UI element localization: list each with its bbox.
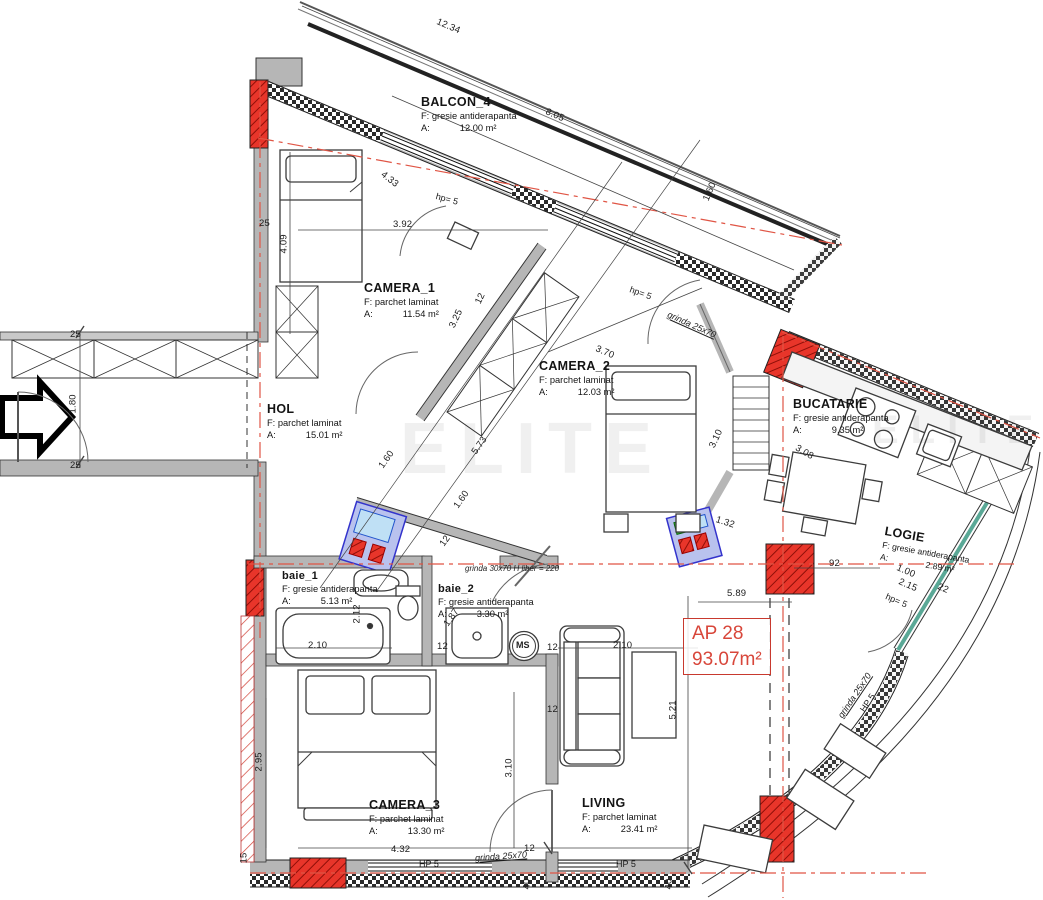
wardrobe <box>276 286 318 378</box>
room-label-living: LIVING F: parchet laminat A:23.41 m² <box>582 796 658 834</box>
room-label-camera-3: CAMERA_3 F: parchet laminat A:13.30 m² <box>369 798 445 836</box>
apartment-label: AP 28 93.07m² <box>683 618 771 675</box>
dimension-label: 12 <box>547 704 558 715</box>
dimension-label: 1.80 <box>68 394 79 413</box>
entry-direction-arrow <box>2 382 72 452</box>
red-column <box>766 544 814 594</box>
annotation-label: HP 5 <box>419 859 439 869</box>
washing-machine-label: MS <box>516 640 530 650</box>
terrace-furniture <box>787 769 854 829</box>
dimension-label: 5.89 <box>727 588 746 599</box>
dimension-label: 25 <box>70 460 81 471</box>
dimension-label: 2.12 <box>352 604 363 623</box>
stairwell <box>733 376 769 470</box>
watermark: ELITE <box>400 408 664 490</box>
bed <box>280 150 362 282</box>
dimension-label: 25 <box>70 329 81 340</box>
dimension-label: 40 <box>664 879 675 890</box>
dimension-label: 2.95 <box>254 752 265 771</box>
dimension-label: 40 <box>522 879 533 890</box>
dimension-label: 2.10 <box>613 640 632 651</box>
dimension-label: 4.09 <box>279 234 290 253</box>
room-label-camera-1: CAMERA_1 F: parchet laminat A:11.54 m² <box>364 281 439 319</box>
room-label-hol: HOL F: parchet laminat A:15.01 m² <box>267 402 343 440</box>
dining-table <box>760 449 885 544</box>
annotation-label: HP 5 <box>616 859 636 869</box>
room-label-baie-1: baie_1 F: gresie antiderapanta A:5.13 m² <box>282 570 378 606</box>
desk-chair <box>447 222 478 249</box>
toilet <box>396 586 420 620</box>
room-label-bucatarie: BUCATARIE F: gresie antiderapanta A:9.35… <box>793 397 889 435</box>
dimension-label: 25 <box>259 218 270 229</box>
corridor <box>0 332 258 476</box>
dimension-label: 3.10 <box>504 758 515 777</box>
bathtub <box>276 608 390 664</box>
watermark: ELITE <box>872 408 1043 453</box>
dimension-label: 12 <box>437 641 448 652</box>
dimension-label: 3.92 <box>393 219 412 230</box>
floorplan-page: ELITE ELITE BALCON_4 F: gresie antiderap… <box>0 0 1043 900</box>
dimension-label: 12 <box>547 642 558 653</box>
dimension-label: 4.32 <box>391 844 410 855</box>
dimension-label: 15 <box>239 853 250 864</box>
coffee-table <box>632 652 676 738</box>
dimension-label: 2.10 <box>308 640 327 651</box>
red-column <box>246 560 264 616</box>
room-label-balcon-4: BALCON_4 F: gresie antiderapanta A:12.00… <box>421 95 517 133</box>
dimension-label: 5.21 <box>668 700 679 719</box>
dimension-label: 92 <box>829 558 840 569</box>
annotation-label: grinda 30x70 H liber = 220 <box>465 564 559 573</box>
room-label-camera-2: CAMERA_2 F: parchet laminat A:12.03 m² <box>539 359 615 397</box>
